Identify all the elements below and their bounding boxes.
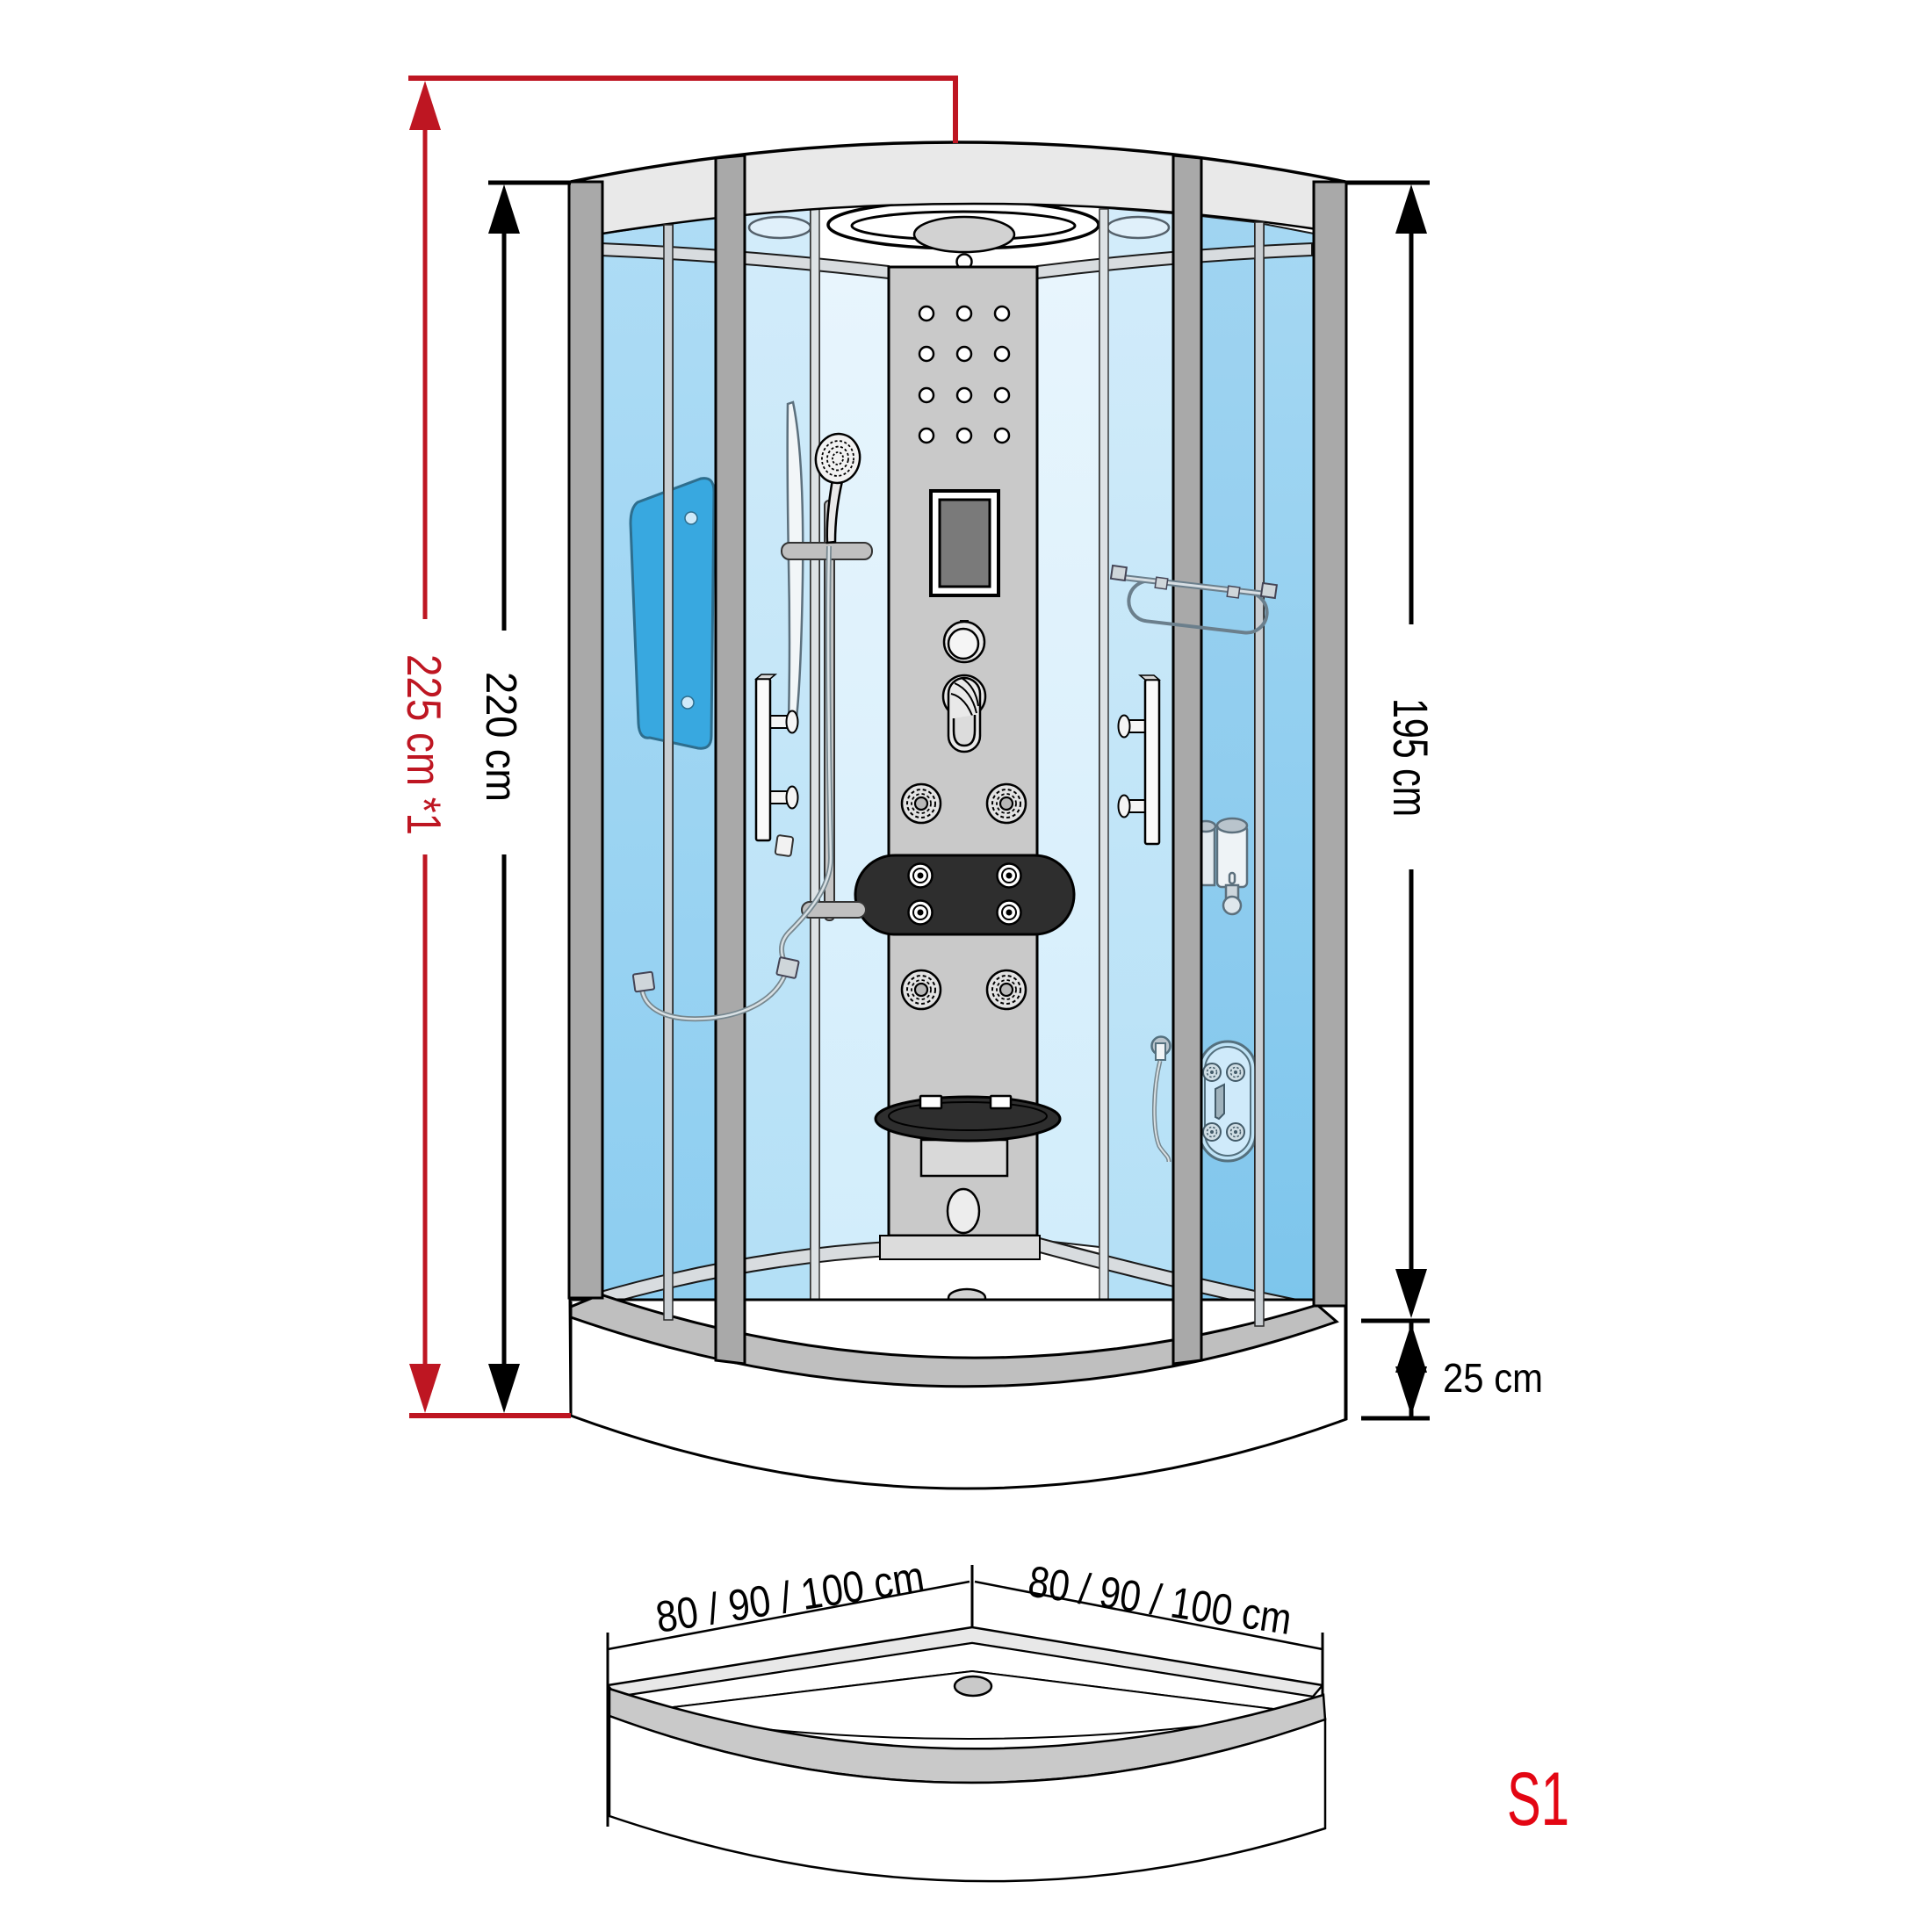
svg-text:S1: S1 (1507, 1757, 1569, 1842)
svg-text:195 cm: 195 cm (1383, 698, 1438, 817)
svg-text:225 cm *1: 225 cm *1 (397, 654, 451, 835)
svg-text:220 cm: 220 cm (477, 672, 524, 802)
svg-text:25 cm: 25 cm (1443, 1355, 1543, 1401)
